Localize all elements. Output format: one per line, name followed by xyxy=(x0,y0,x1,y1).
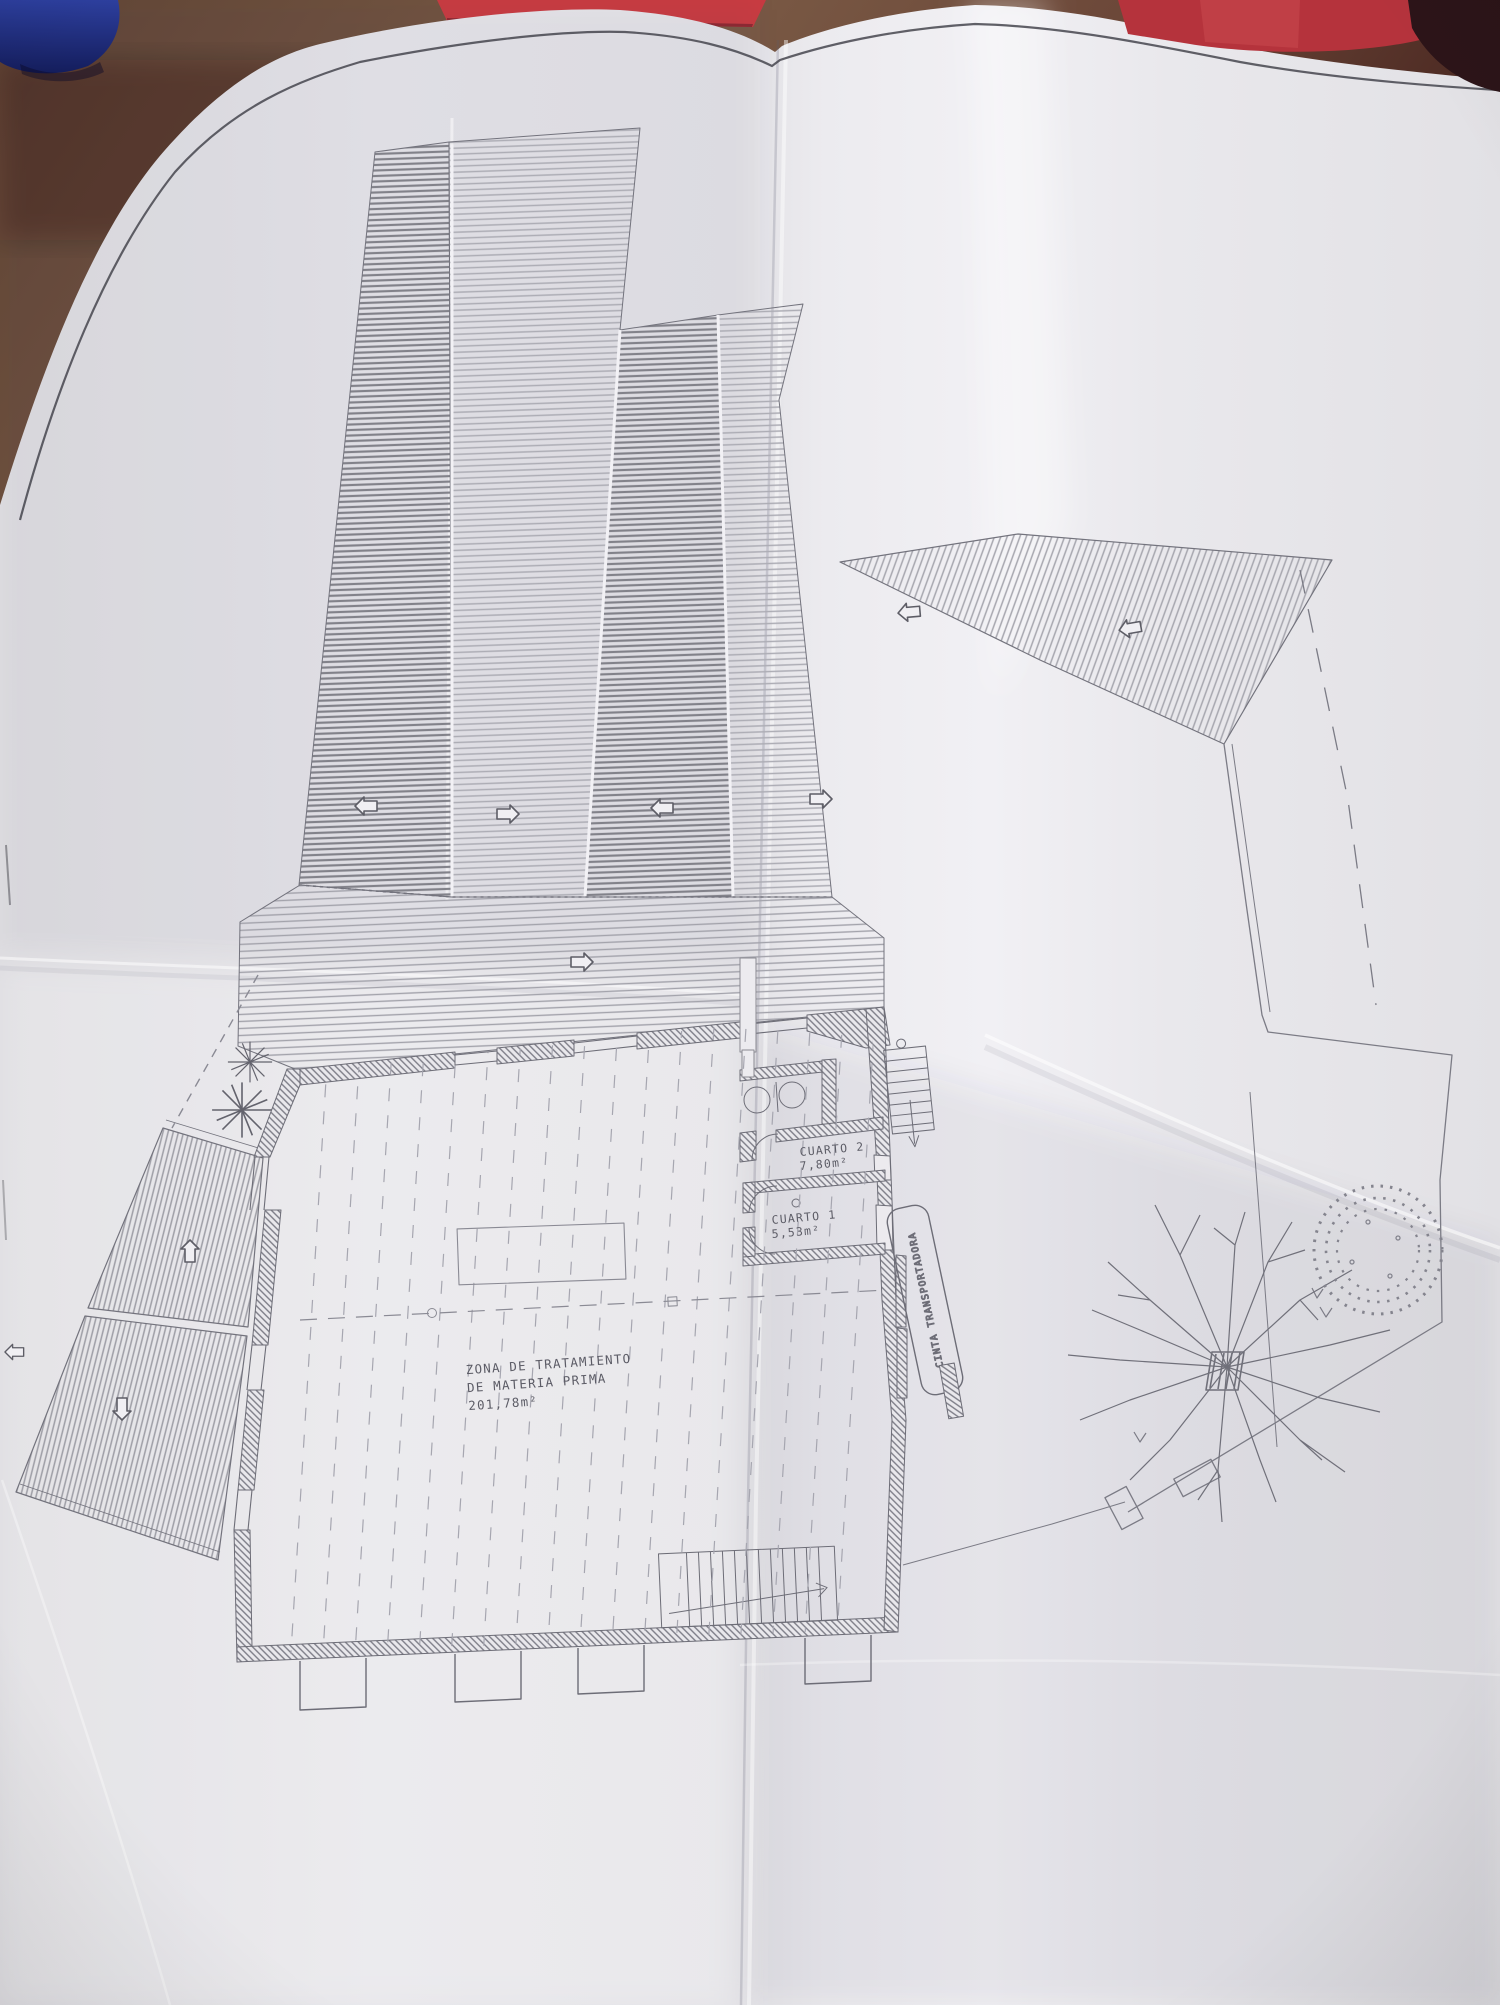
blueprint-photo-svg: CINTA TRANSPORTADORA xyxy=(0,0,1500,2005)
photo-vignette xyxy=(0,0,1500,2005)
photo-of-floor-plan: CINTA TRANSPORTADORA xyxy=(0,0,1500,2005)
